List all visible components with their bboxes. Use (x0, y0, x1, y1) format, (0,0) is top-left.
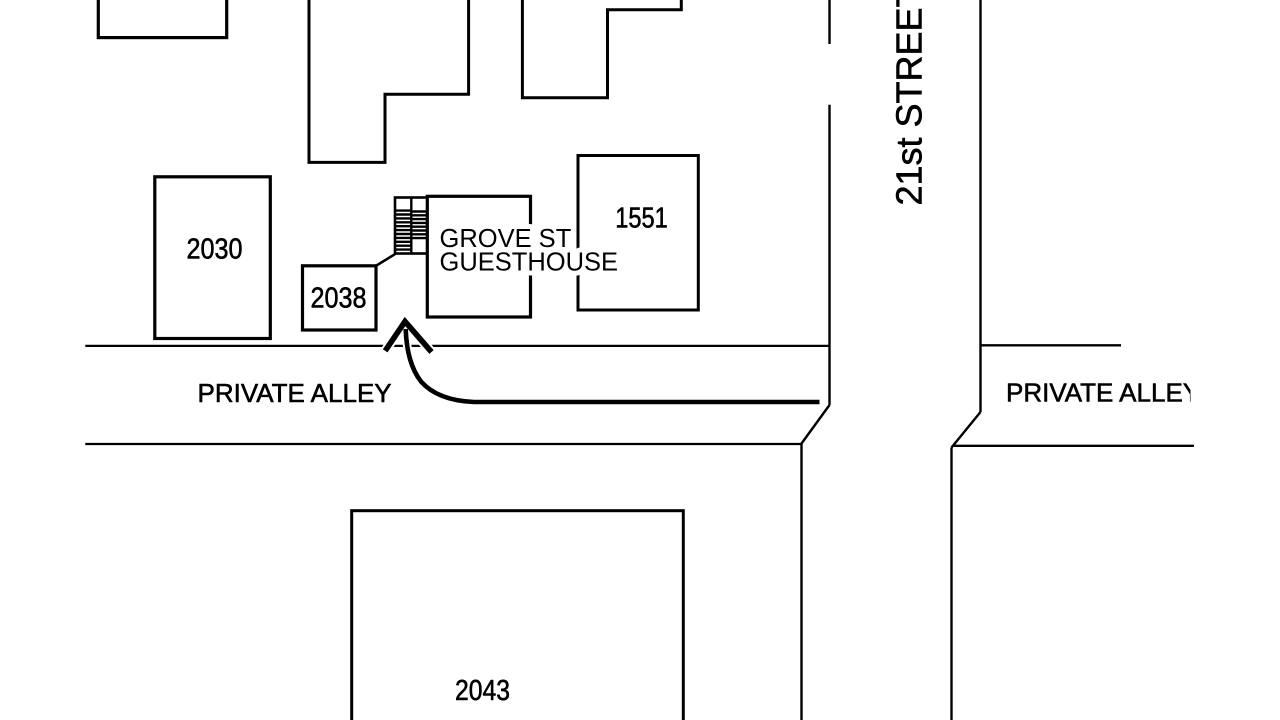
svg-text:1551: 1551 (615, 203, 668, 235)
svg-text:PRIVATE ALLEY: PRIVATE ALLEY (198, 378, 392, 408)
svg-text:2038: 2038 (311, 283, 367, 315)
svg-text:GUESTHOUSE: GUESTHOUSE (440, 249, 619, 277)
svg-text:21st STREET: 21st STREET (889, 0, 930, 206)
svg-text:2043: 2043 (455, 675, 510, 707)
svg-text:2030: 2030 (187, 234, 243, 266)
svg-text:PRIVATE ALLEY: PRIVATE ALLEY (1006, 378, 1200, 408)
